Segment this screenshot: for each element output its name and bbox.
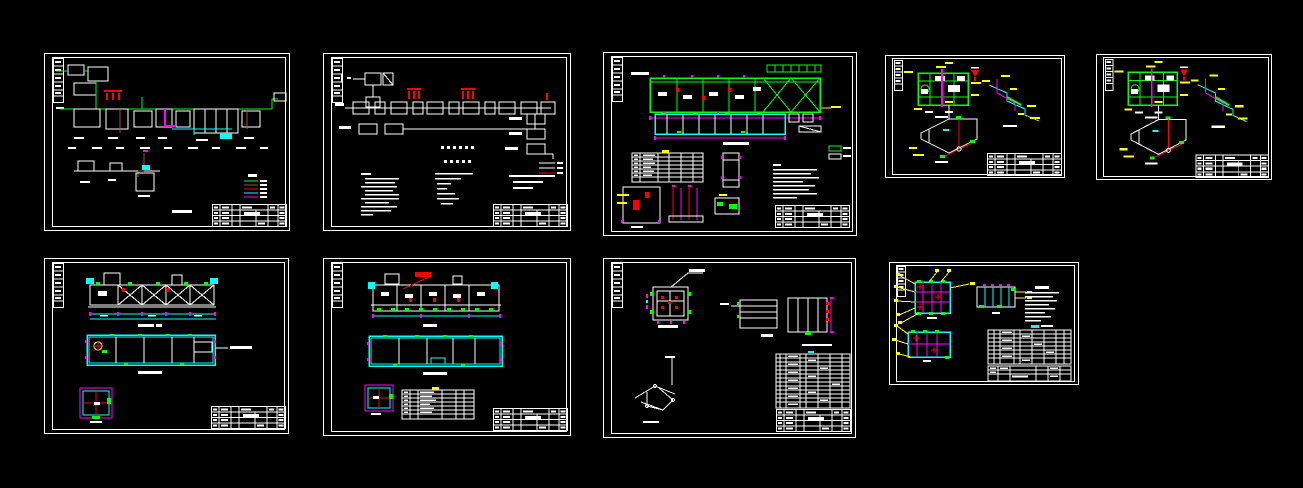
grid-plan-1 [894,269,975,324]
sheet-2-block-flow[interactable] [323,53,571,231]
upper-process-train [56,65,286,149]
legend [244,174,267,198]
sheet-2-artwork [323,53,571,231]
grid-plan-2 [892,324,950,362]
notes-right [509,175,555,189]
title-block-small [988,366,1071,381]
sheet-3-artwork [603,52,857,236]
plan-view [85,334,252,374]
sheet-1-artwork [44,53,290,231]
quantity-table [632,150,703,182]
plan-label [631,72,649,75]
drawing-caption [172,210,192,213]
sheet-5-pump-room[interactable] [1096,54,1272,180]
sheet-9-artwork [889,262,1079,385]
schedule-table [988,330,1071,364]
long-section [368,272,501,327]
dosing-ticks-red [407,88,548,100]
detail-green-mid [715,194,739,214]
detail-square [365,385,393,415]
flow-blocks [335,73,555,159]
notes-left [361,173,399,216]
sheet-8-details-schedule[interactable] [603,258,856,438]
sheet-6-sections[interactable] [44,258,289,434]
sheet-8-artwork [603,258,856,438]
iso-sketch [635,356,675,423]
legend [539,162,563,174]
legend [829,146,851,159]
sheet-4-artwork [885,55,1065,178]
notes [773,164,819,199]
section-right-b [761,297,833,337]
cad-model-space [0,0,1303,488]
detail-square [80,388,112,423]
detail-bottom-left [617,187,660,228]
sheet-7-sections-schedule[interactable] [323,258,571,436]
notes [1025,286,1059,328]
sheet-5-artwork [1096,54,1272,180]
sheet-3-plan-layout[interactable] [603,52,857,236]
cyan-building-plan [654,113,821,140]
chemical-dosing-red [104,90,122,100]
equipment-table [776,351,850,408]
sheet-1-process-flow[interactable] [44,53,290,231]
caption-rows [441,146,474,163]
sheet-6-artwork [44,258,289,434]
schedule-table [402,387,474,419]
section-right-a [720,300,777,328]
detail-column [721,153,741,187]
sludge-line-diagram [74,150,160,197]
green-tank-plan [649,65,841,120]
notes-middle [435,173,473,205]
sheet-7-artwork [323,258,571,436]
detail-top-left [646,269,705,328]
detail-columns-mid [669,185,703,222]
plan-caption [723,142,749,145]
plan-view [367,335,502,375]
note-row [802,344,832,346]
sheet-4-pump-room[interactable] [885,55,1065,178]
long-section [86,273,218,327]
sheet-9-grid-details[interactable] [889,262,1079,385]
section-2-2 [977,284,1032,314]
callout-leaders [894,269,975,324]
